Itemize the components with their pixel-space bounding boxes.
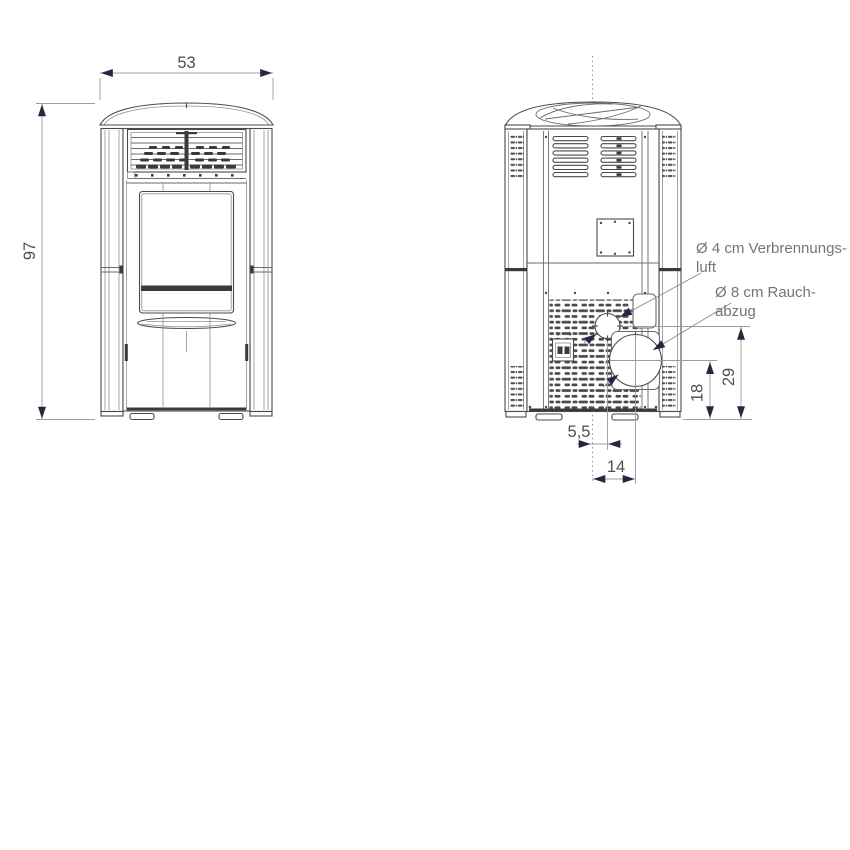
dimension-width: 53 <box>100 54 273 100</box>
door-glass-bar <box>141 286 232 292</box>
rear-right-column <box>659 129 681 417</box>
rear-right-vent-top <box>662 135 676 179</box>
technical-drawing: 53 97 5,5 14 18 29 <box>0 0 850 850</box>
rear-access-plate <box>597 219 634 256</box>
front-base <box>123 408 250 420</box>
air-height-value: 29 <box>720 368 738 386</box>
front-air-grille <box>128 130 247 179</box>
door-glass <box>140 192 234 314</box>
flue-label-line2: abzug <box>715 303 756 320</box>
air-offset-value: 5,5 <box>568 423 591 441</box>
combustion-air-label-line2: luft <box>696 259 717 276</box>
door-hinge-left <box>125 344 128 361</box>
rear-view <box>505 56 681 484</box>
drawing-svg: 53 97 5,5 14 18 29 <box>0 0 850 850</box>
door-hinge-right <box>245 344 248 361</box>
rear-left-vent-top <box>510 135 524 179</box>
rear-foot-left <box>536 414 562 420</box>
height-value: 97 <box>21 242 39 260</box>
dimension-height: 97 <box>21 104 95 420</box>
rear-left-column <box>505 129 527 417</box>
front-right-column <box>250 129 272 417</box>
front-view <box>100 103 273 420</box>
rear-left-vent-bottom <box>510 366 524 408</box>
rear-right-vent-bottom <box>662 366 676 408</box>
width-value: 53 <box>177 54 195 72</box>
front-foot-right <box>219 414 243 420</box>
front-left-column <box>101 129 123 417</box>
front-foot-left <box>130 414 154 420</box>
flue-label-line1: Ø 8 cm Rauch- <box>715 284 816 301</box>
rear-panel <box>527 129 665 420</box>
rear-foot-right <box>612 414 638 420</box>
flue-height-value: 18 <box>689 384 707 402</box>
combustion-air-label-line1: Ø 4 cm Verbrennungs- <box>696 240 847 257</box>
flue-offset-value: 14 <box>607 458 625 476</box>
